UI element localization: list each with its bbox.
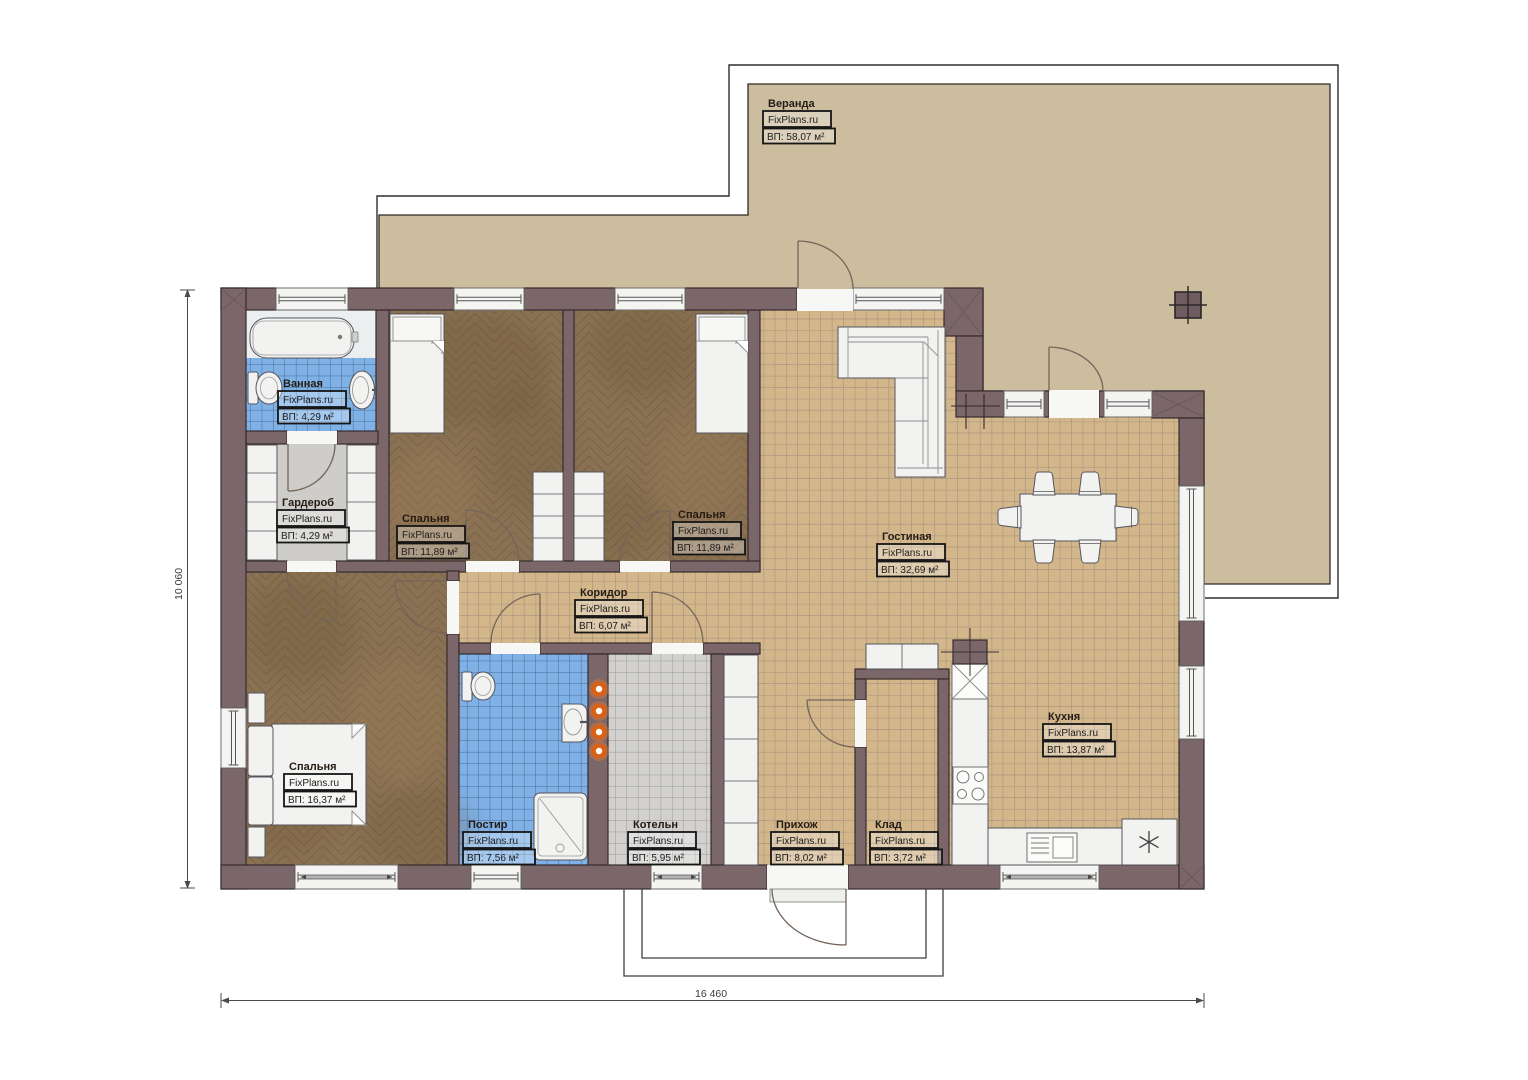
svg-text:16 460: 16 460 (695, 988, 727, 1000)
svg-text:ВП: 8,02 м²: ВП: 8,02 м² (775, 853, 828, 864)
svg-text:ВП: 3,72 м²: ВП: 3,72 м² (874, 853, 927, 864)
svg-text:ВП: 16,37 м²: ВП: 16,37 м² (288, 795, 346, 806)
svg-text:Постир: Постир (468, 819, 508, 831)
svg-text:Спальня: Спальня (402, 513, 450, 525)
svg-text:ВП: 32,69 м²: ВП: 32,69 м² (881, 565, 939, 576)
svg-text:Веранда: Веранда (768, 98, 816, 110)
svg-text:Прихож: Прихож (776, 819, 818, 831)
svg-text:Коридор: Коридор (580, 587, 628, 599)
svg-text:FixPlans.ru: FixPlans.ru (289, 778, 339, 789)
svg-text:Гардероб: Гардероб (282, 497, 334, 509)
svg-text:FixPlans.ru: FixPlans.ru (776, 836, 826, 847)
svg-text:FixPlans.ru: FixPlans.ru (282, 514, 332, 525)
svg-text:ВП: 11,89 м²: ВП: 11,89 м² (677, 543, 734, 554)
svg-text:ВП: 58,07 м²: ВП: 58,07 м² (767, 132, 825, 143)
svg-text:ВП: 11,89 м²: ВП: 11,89 м² (401, 547, 458, 558)
svg-text:ВП: 4,29 м²: ВП: 4,29 м² (281, 531, 334, 542)
svg-text:ВП: 4,29 м²: ВП: 4,29 м² (282, 412, 335, 423)
svg-text:FixPlans.ru: FixPlans.ru (580, 604, 630, 615)
svg-text:FixPlans.ru: FixPlans.ru (882, 548, 932, 559)
svg-text:FixPlans.ru: FixPlans.ru (1048, 728, 1098, 739)
svg-text:Котельн: Котельн (633, 819, 678, 831)
svg-text:Кухня: Кухня (1048, 711, 1080, 723)
svg-text:FixPlans.ru: FixPlans.ru (875, 836, 925, 847)
svg-text:FixPlans.ru: FixPlans.ru (678, 526, 728, 537)
svg-text:FixPlans.ru: FixPlans.ru (283, 395, 333, 406)
svg-text:ВП: 5,95 м²: ВП: 5,95 м² (632, 853, 685, 864)
svg-text:Спальня: Спальня (678, 509, 726, 521)
svg-text:ВП: 7,56 м²: ВП: 7,56 м² (467, 853, 520, 864)
svg-text:Гостиная: Гостиная (882, 531, 932, 543)
svg-text:FixPlans.ru: FixPlans.ru (402, 530, 452, 541)
svg-text:ВП: 6,07 м²: ВП: 6,07 м² (579, 621, 632, 632)
svg-text:Клад: Клад (875, 819, 902, 831)
svg-text:10 060: 10 060 (173, 568, 185, 600)
svg-text:FixPlans.ru: FixPlans.ru (468, 836, 518, 847)
svg-text:FixPlans.ru: FixPlans.ru (768, 115, 818, 126)
svg-text:Спальня: Спальня (289, 761, 337, 773)
svg-text:ВП: 13,87 м²: ВП: 13,87 м² (1047, 745, 1105, 756)
svg-text:Ванная: Ванная (283, 378, 323, 390)
svg-text:FixPlans.ru: FixPlans.ru (633, 836, 683, 847)
